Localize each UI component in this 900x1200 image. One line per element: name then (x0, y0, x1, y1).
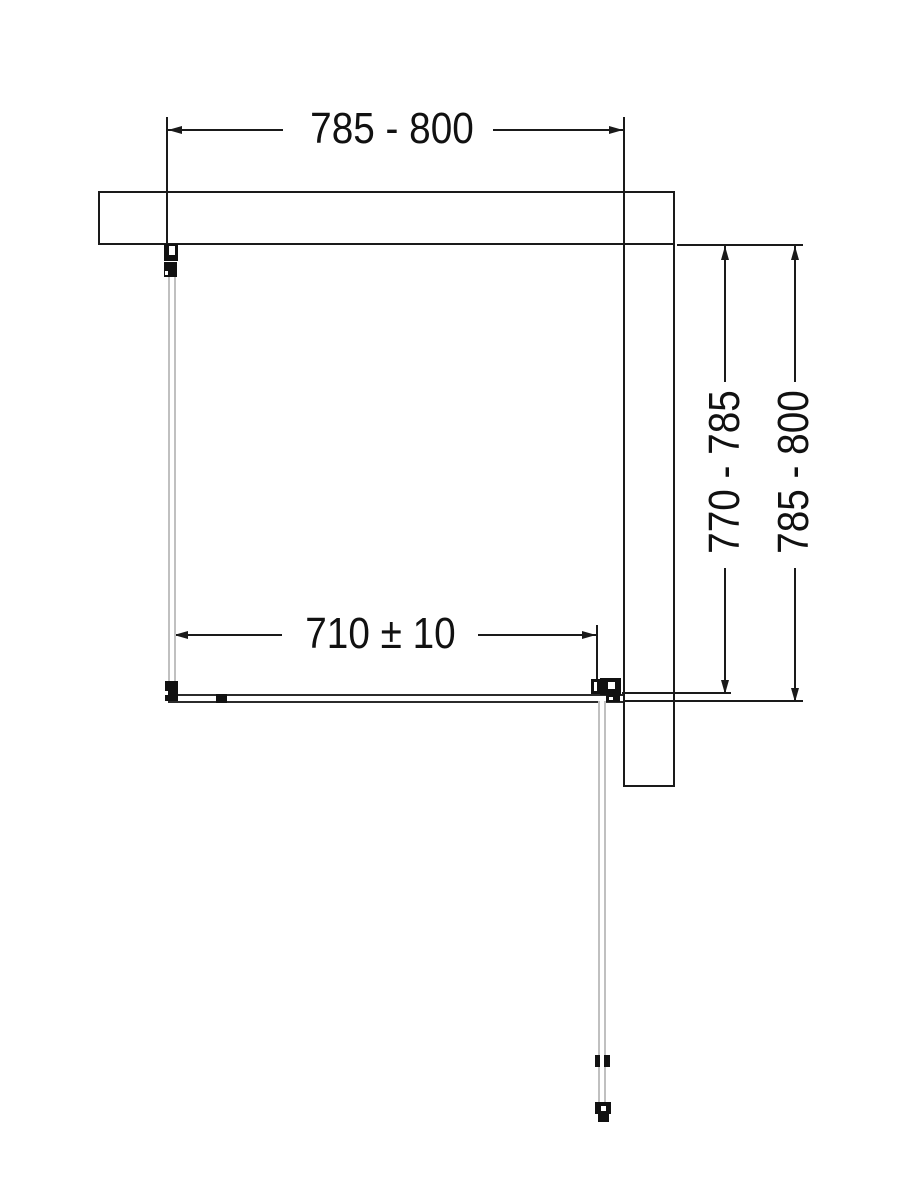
panel-clamp-top-notch (165, 271, 168, 275)
dim-arrowhead-left-icon (174, 631, 188, 639)
dimension-label-depth-inner: 770 - 785 (695, 312, 755, 632)
dimension-label-door-width: 710 ± 10 (220, 604, 540, 664)
extension-line-door-right (596, 625, 598, 681)
dimension-label-depth-outer: 785 - 800 (764, 312, 824, 632)
corner-bracket-notch (165, 691, 168, 695)
wall-right (623, 191, 675, 787)
drawing-canvas: 785 - 800 710 ± 10 770 - 785 785 - 800 (0, 0, 900, 1200)
extension-line-depth-outer-bottom (622, 700, 803, 702)
pivot-hinge-foot-notch (609, 697, 613, 700)
extension-line-depth-top (677, 244, 803, 246)
door-end-cap-hole (601, 1106, 606, 1111)
dim-arrowhead-left-icon (168, 126, 182, 134)
door-panel-glass (598, 701, 606, 1103)
pivot-hinge-pin (608, 682, 615, 689)
dim-arrowhead-up-icon (791, 246, 799, 260)
dim-arrowhead-up-icon (721, 246, 729, 260)
track-clamp (216, 694, 227, 703)
pivot-hinge-plate (591, 679, 600, 694)
wall-bracket-top-slot (169, 246, 175, 255)
dim-arrowhead-down-icon (791, 688, 799, 702)
door-end-cap-tip (598, 1114, 609, 1122)
extension-line-top-left (166, 117, 168, 246)
wall-top (98, 191, 675, 245)
front-panel-track (168, 694, 623, 703)
dim-arrowhead-right-icon (609, 126, 623, 134)
door-clamp-slot (600, 1055, 604, 1067)
dim-arrowhead-right-icon (582, 631, 596, 639)
dimension-label-top-width: 785 - 800 (232, 99, 552, 159)
side-panel-glass (168, 277, 176, 682)
extension-line-depth-inner-bottom (622, 692, 731, 694)
dim-arrowhead-down-icon (721, 680, 729, 694)
